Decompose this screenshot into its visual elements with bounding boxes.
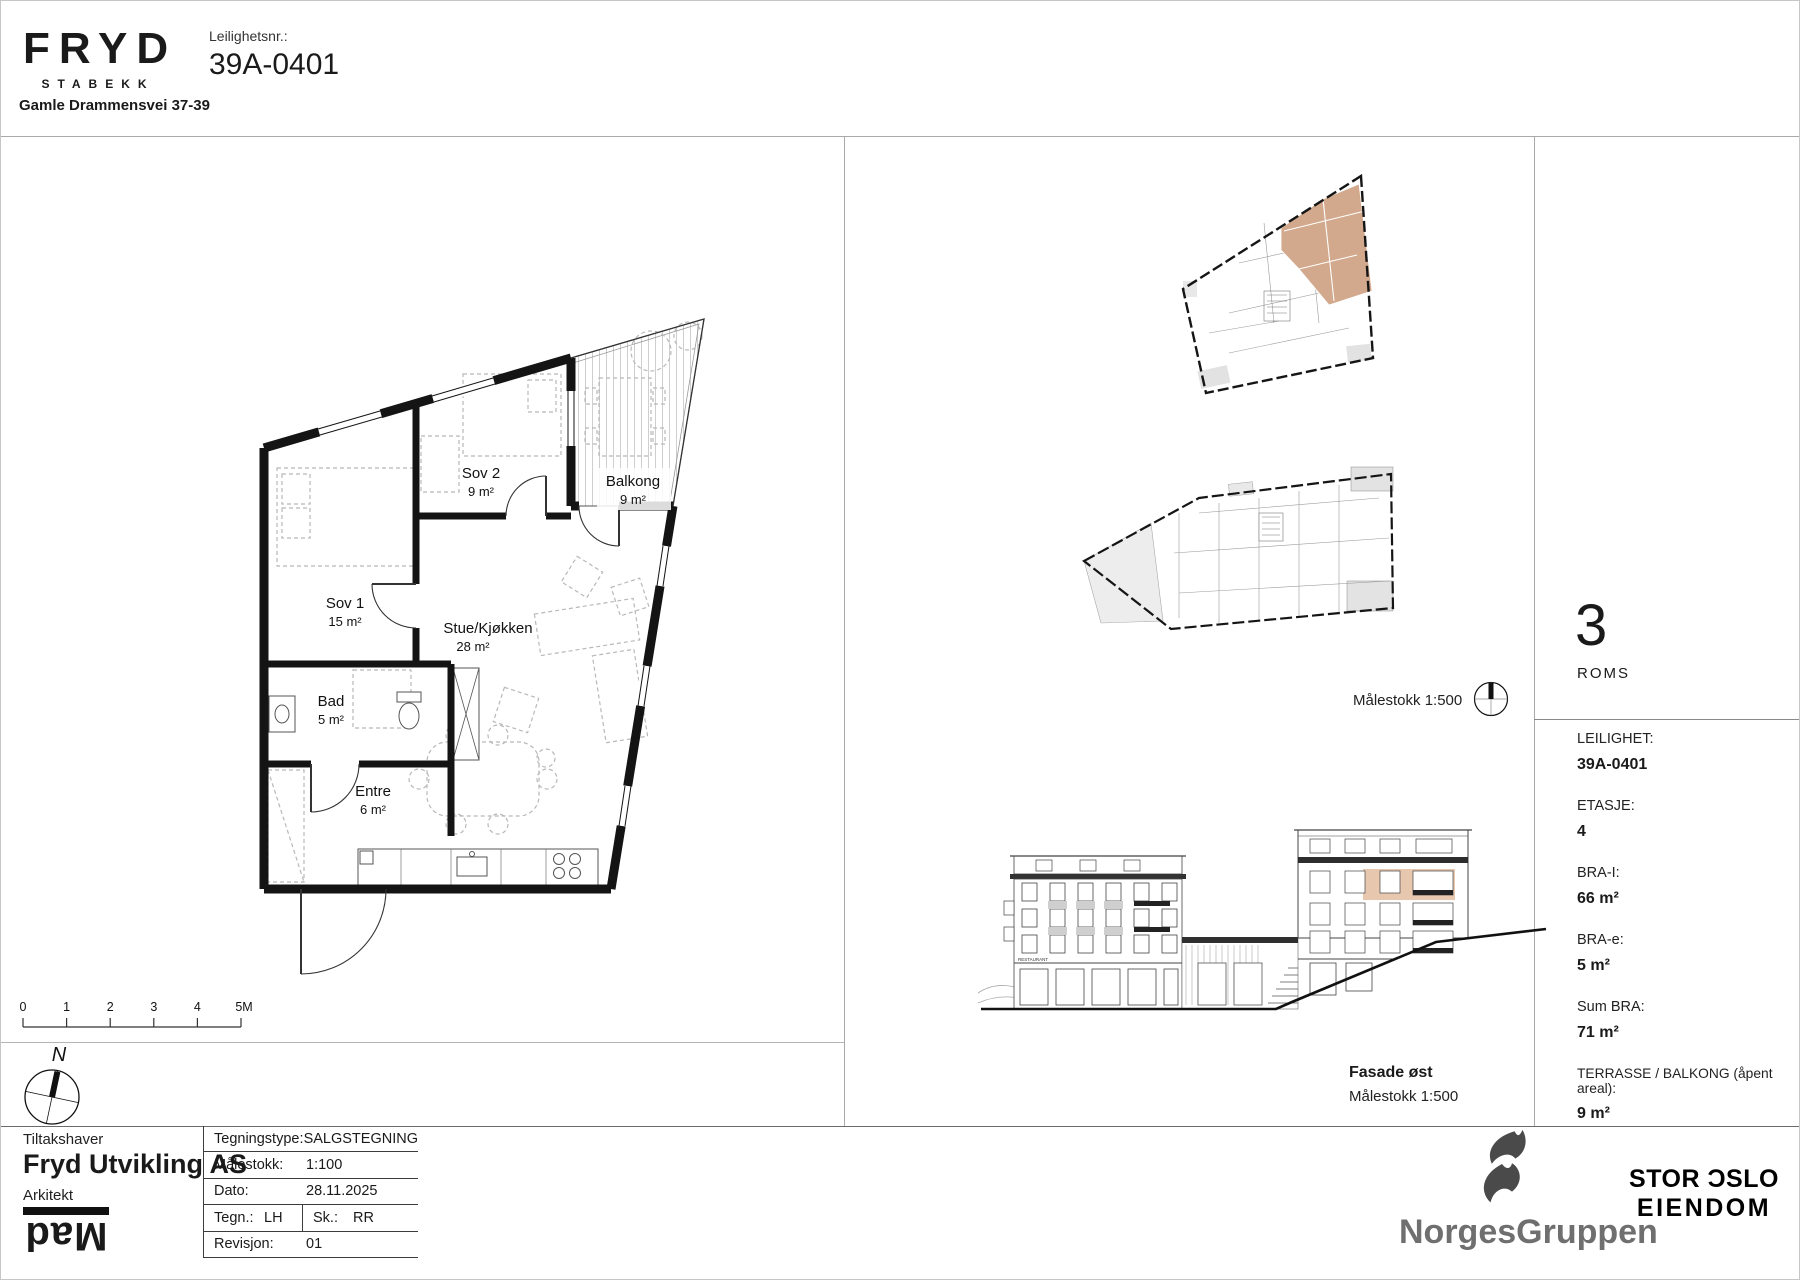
kitchen-sink <box>457 857 487 876</box>
summary-divider <box>1534 719 1800 720</box>
rooms-count: 3 <box>1575 597 1607 655</box>
room-area-bad: 5 m² <box>318 712 345 727</box>
svg-text:3: 3 <box>150 1000 157 1014</box>
mad-logo: Mad <box>23 1207 109 1257</box>
summary-field: Sum BRA: 71 m² <box>1577 999 1792 1066</box>
room-area-sov2: 9 m² <box>468 484 495 499</box>
compass-icon <box>1469 677 1513 721</box>
table-row: Dato: 28.11.2025 <box>204 1179 418 1205</box>
norgesgruppen-wordmark: NorgesGruppen <box>1399 1213 1658 1252</box>
scale-bar: 0 1 2 3 4 5M <box>3 997 283 1045</box>
svg-text:1: 1 <box>63 1000 70 1014</box>
panel-divider-left <box>844 136 845 1126</box>
apartment-id-block: Leilighetsnr.: 39A-0401 <box>209 28 339 82</box>
table-row: Målestokk: 1:100 <box>204 1152 418 1178</box>
keyplan-scale-label: Målestokk 1:500 <box>1353 692 1462 709</box>
svg-text:5M: 5M <box>235 1000 252 1014</box>
restaurant-sign: RESTAURANT <box>1018 957 1048 962</box>
apartment-number: 39A-0401 <box>209 48 339 82</box>
titleblock-table: Tegningstype: SALGSTEGNING Målestokk: 1:… <box>203 1126 418 1258</box>
owner-label: Tiltakshaver <box>23 1131 103 1148</box>
table-row: Tegningstype: SALGSTEGNING <box>204 1126 418 1152</box>
toilet <box>399 703 419 729</box>
keyplan-highlighted <box>1169 163 1409 413</box>
table-row: Revisjon: 01 <box>204 1232 418 1258</box>
stor-oslo-eiendom-logo: STOR ƆSLO EIENDOM <box>1629 1165 1779 1223</box>
north-arrow-icon: N <box>15 1041 110 1129</box>
room-area-balkong: 9 m² <box>620 492 647 507</box>
table-row: Tegn.: LH Sk.: RR <box>204 1205 418 1231</box>
elevation-left-building <box>1004 856 1186 1009</box>
summary-field: LEILIGHET: 39A-0401 <box>1577 731 1792 798</box>
room-label-stue: Stue/Kjøkken <box>443 620 532 637</box>
brand-wordmark: FRYD <box>23 27 183 71</box>
norgesgruppen-icon <box>1463 1129 1553 1209</box>
apartment-number-label: Leilighetsnr.: <box>209 28 339 44</box>
brand-sub: STABEKK <box>23 77 173 91</box>
elevation-connector <box>1182 937 1298 1009</box>
room-label-sov2: Sov 2 <box>462 465 500 482</box>
fryd-logo: FRYD STABEKK <box>23 27 183 91</box>
elevation-right-building <box>1294 830 1472 995</box>
elevation-title: Fasade øst <box>1349 1064 1433 1082</box>
room-area-sov1: 15 m² <box>328 614 362 629</box>
summary-field: TERRASSE / BALKONG (åpent areal): 9 m² <box>1577 1066 1792 1133</box>
apartment-summary: LEILIGHET: 39A-0401 ETASJE: 4 BRA-I: 66 … <box>1577 731 1792 1133</box>
svg-text:0: 0 <box>20 1000 27 1014</box>
stove-burner <box>554 854 565 865</box>
svg-text:N: N <box>52 1044 67 1066</box>
mad-logo-text: Mad <box>23 1215 109 1257</box>
summary-field: BRA-e: 5 m² <box>1577 932 1792 999</box>
room-label-entre: Entre <box>355 783 391 800</box>
svg-text:2: 2 <box>107 1000 114 1014</box>
rooms-count-label: ROMS <box>1577 665 1630 682</box>
elevation-scale-label: Målestokk 1:500 <box>1349 1088 1458 1105</box>
svg-text:4: 4 <box>194 1000 201 1014</box>
floorplan-drawing: Sov 2 9 m² Balkong 9 m² Sov 1 15 m² Stue… <box>1 136 844 1042</box>
summary-field: ETASJE: 4 <box>1577 798 1792 865</box>
keyplan-full-floor <box>1079 453 1401 648</box>
room-label-bad: Bad <box>318 693 345 710</box>
room-area-entre: 6 m² <box>360 802 387 817</box>
room-label-sov1: Sov 1 <box>326 595 364 612</box>
room-label-balkong: Balkong <box>606 473 660 490</box>
summary-field: BRA-I: 66 m² <box>1577 865 1792 932</box>
room-area-stue: 28 m² <box>456 639 490 654</box>
elevation-drawing: RESTAURANT <box>976 813 1551 1048</box>
project-address: Gamle Drammensvei 37-39 <box>19 97 210 114</box>
architect-label: Arkitekt <box>23 1187 73 1204</box>
drawing-sheet: FRYD STABEKK Gamle Drammensvei 37-39 Lei… <box>0 0 1800 1280</box>
